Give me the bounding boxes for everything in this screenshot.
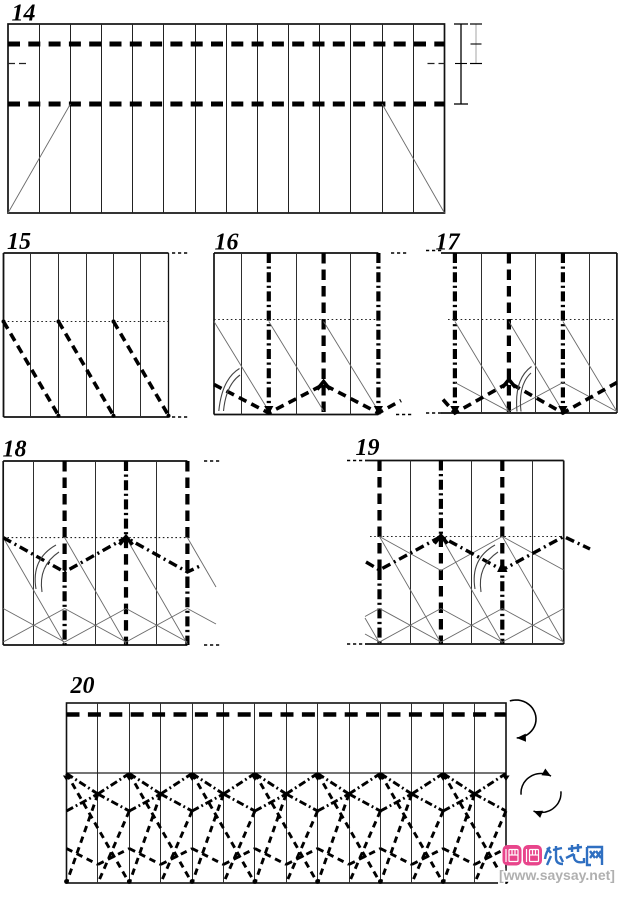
svg-text:[www.saysay.net]: [www.saysay.net] (499, 867, 615, 883)
svg-text:15: 15 (7, 229, 31, 255)
svg-text:20: 20 (70, 673, 95, 699)
svg-text:16: 16 (215, 230, 239, 256)
svg-text:17: 17 (436, 230, 461, 256)
svg-text:18: 18 (3, 437, 27, 463)
svg-text:14: 14 (12, 1, 36, 27)
svg-text:19: 19 (356, 435, 380, 461)
